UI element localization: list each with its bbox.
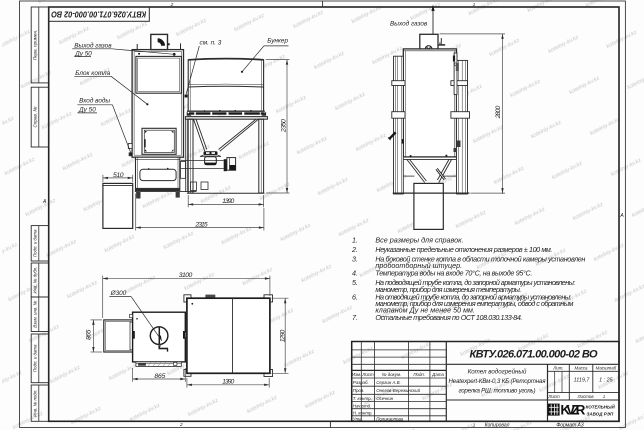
svg-text:Подп. и дата: Подп. и дата [33,344,38,372]
svg-text:КВТУ.026.071.00.000-02 ВО: КВТУ.026.071.00.000-02 ВО [51,9,146,18]
svg-text:1 : 25: 1 : 25 [599,377,613,383]
svg-text:Листов: Листов [577,394,595,399]
svg-text:Подп.: Подп. [413,372,425,377]
svg-text:1.: 1. [352,236,358,245]
svg-text:Дата: Дата [431,372,444,377]
svg-text:Утв.: Утв. [353,417,363,422]
svg-text:Осечкин: Осечкин [376,396,394,401]
svg-text:1: 1 [473,422,476,428]
svg-text:4.: 4. [352,269,358,278]
svg-text:5.: 5. [352,278,358,287]
svg-text:Блок котла: Блок котла [75,70,110,77]
svg-text:А: А [619,213,624,219]
svg-text:Бункер: Бункер [267,38,288,45]
svg-text:2800: 2800 [495,106,502,120]
svg-text:Взам. инв. №: Взам. инв. № [33,300,38,327]
svg-text:Поликарпова: Поликарпова [376,417,403,422]
svg-text:1119,7: 1119,7 [574,377,591,383]
svg-text:2350: 2350 [280,119,287,133]
svg-text:2315: 2315 [194,221,207,228]
svg-text:Все размеры для справок.: Все размеры для справок. [375,236,463,245]
svg-text:Лист: Лист [547,394,560,399]
svg-text:Котел водогрейный: Котел водогрейный [468,369,527,376]
svg-text:Вход воды: Вход воды [79,97,110,105]
svg-text:Онегов-Вережинский: Онегов-Вережинский [376,388,420,393]
svg-text:2: 2 [170,2,174,8]
svg-text:1: 1 [473,2,476,8]
svg-text:КОТЕЛЬНЫЙ: КОТЕЛЬНЫЙ [586,403,616,410]
svg-text:3.: 3. [352,255,358,264]
svg-text:Ø300: Ø300 [110,290,127,297]
svg-text:Heatexpert-КВм-0,3 КБ (Ретортн: Heatexpert-КВм-0,3 КБ (Ретортная [449,378,547,385]
svg-text:Формат А3: Формат А3 [556,422,584,428]
svg-text:Справ. №: Справ. № [33,107,38,128]
svg-text:6.: 6. [352,292,358,301]
svg-text:Выход газов: Выход газов [390,19,428,27]
svg-text:Масштаб: Масштаб [596,366,617,371]
svg-text:KVZR: KVZR [560,403,585,418]
svg-text:Инв. № подл.: Инв. № подл. [33,389,38,416]
svg-text:ЗАВОД РЭП: ЗАВОД РЭП [587,411,614,416]
svg-text:Неуказанные предельные отклоне: Неуказанные предельные отклонения размер… [375,245,552,254]
svg-text:865: 865 [154,373,165,380]
svg-text:3100: 3100 [179,272,193,279]
svg-text:Пров.: Пров. [353,388,365,393]
svg-text:Перв. примен.: Перв. примен. [33,30,38,61]
svg-text:865: 865 [86,329,93,340]
svg-text:Инв. № дубл.: Инв. № дубл. [33,266,38,293]
svg-text:Нач.отд.: Нач.отд. [353,403,372,408]
svg-text:см. п. 3: см. п. 3 [200,40,222,47]
svg-text:7.: 7. [352,313,358,322]
svg-text:Изм.: Изм. [352,372,361,377]
svg-text:2: 2 [179,422,183,428]
svg-text:Т. контр.: Т. контр. [353,396,372,401]
svg-text:Остальные требования по ОСТ 10: Остальные требования по ОСТ 108.030.133-… [375,313,522,322]
svg-text:Лит.: Лит. [552,366,563,371]
svg-text:А: А [42,199,47,205]
svg-text:Лист: Лист [361,372,374,377]
svg-text:Сергин А.В.: Сергин А.В. [376,380,401,385]
svg-text:Н. контр.: Н. контр. [353,410,373,415]
svg-text:КВТУ.026.071.00.000-02 ВО: КВТУ.026.071.00.000-02 ВО [470,349,598,361]
svg-text:Выход газов: Выход газов [74,42,112,50]
svg-text:1390: 1390 [222,198,234,205]
svg-text:1290: 1290 [280,329,287,342]
svg-text:Подп. и дата: Подп. и дата [33,229,38,257]
svg-text:Температура воды на входе 70°С: Температура воды на входе 70°С, на выход… [375,269,532,278]
svg-text:1390: 1390 [222,379,234,386]
svg-text:Копировал: Копировал [485,422,510,428]
svg-text:горелка РШ, топливо уголь): горелка РШ, топливо уголь) [459,387,536,394]
svg-text:Ду 50: Ду 50 [78,107,96,114]
svg-text:Масса: Масса [575,366,589,371]
svg-text:2.: 2. [351,245,358,254]
svg-text:№ докум.: № докум. [382,372,401,377]
svg-text:Разраб.: Разраб. [353,380,369,385]
svg-text:510: 510 [113,172,124,179]
